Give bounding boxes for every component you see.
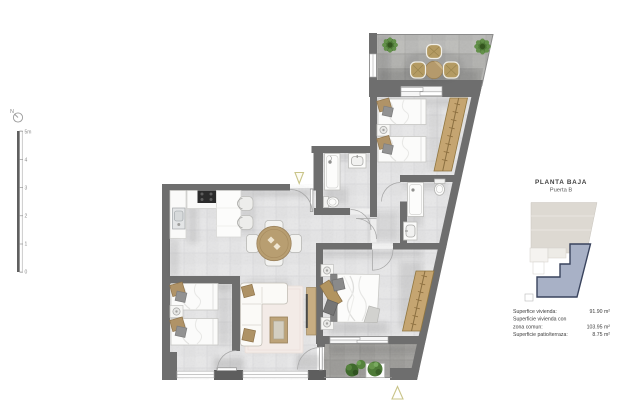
svg-text:Puerta B: Puerta B (550, 188, 573, 194)
svg-text:103.95 m²: 103.95 m² (587, 324, 611, 330)
svg-text:1: 1 (25, 242, 28, 248)
svg-text:0: 0 (25, 270, 28, 276)
svg-text:PLANTA BAJA: PLANTA BAJA (535, 179, 587, 186)
svg-text:N: N (10, 109, 14, 115)
svg-text:Superfice vivienda:: Superfice vivienda: (513, 309, 557, 315)
svg-text:4: 4 (25, 158, 28, 164)
svg-text:2: 2 (25, 214, 28, 220)
svg-text:8.75 m²: 8.75 m² (592, 332, 610, 338)
svg-text:Superficie vivienda con: Superficie vivienda con (513, 317, 566, 323)
svg-text:91.90 m²: 91.90 m² (590, 309, 611, 315)
svg-text:5m: 5m (25, 130, 32, 136)
svg-text:zona comun:: zona comun: (513, 324, 543, 330)
svg-text:3: 3 (25, 186, 28, 192)
svg-text:Superficie patio/terraza:: Superficie patio/terraza: (513, 332, 568, 338)
